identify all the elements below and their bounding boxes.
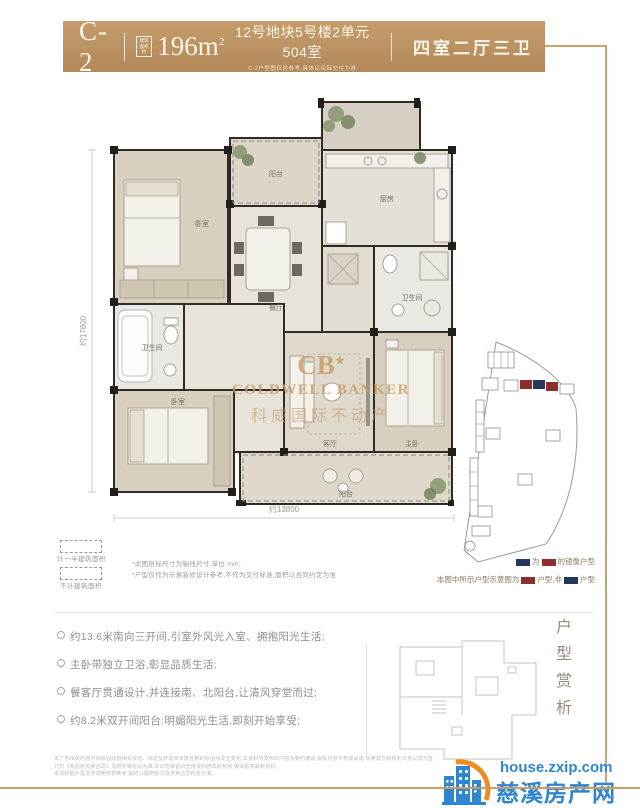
site-plan (448, 336, 626, 568)
feature-item: 餐客厅贯通设计,并连接南、北阳台,让清风穿堂而过; (57, 685, 363, 700)
disclaimer-line2: 本资料图片及文字说明仅供参考,最终以政府批文及买卖合同约定为准。 (54, 771, 434, 779)
site-unit-red (520, 380, 532, 389)
site-unit-red (546, 382, 558, 391)
room-label: 餐厅 (269, 303, 283, 312)
section-divider (55, 612, 595, 613)
disclaimer-line1: 本广告相关内容不排除因政府相关规划、规定及开发商未能控制的原因而发生变化,本资料… (54, 756, 434, 771)
watermark-line1: COLDWELL BANKER (218, 382, 424, 399)
red-chip-icon (542, 559, 556, 566)
room-label: 阳台 (339, 489, 353, 498)
header-divider (391, 33, 392, 61)
features-list: 约13.6米南向三开间,引室外风光入室、拥抱阳光生活;主卧带独立卫浴,彰显品质生… (57, 629, 363, 741)
page: { "header": { "unit_code": "C-2", "area_… (0, 0, 640, 807)
dim-bottom-label: 约13800 (269, 504, 300, 514)
plan-notes: *此图所标尺寸为轴线尺寸,单位:mm; *户型仅作为示意装修设计参考,不作为交付… (132, 559, 336, 581)
coldwell-banker-logo-icon: CB★ (218, 346, 424, 380)
feature-text: 餐客厅贯通设计,并连接南、北阳台,让清风穿堂而过; (70, 685, 317, 700)
feature-text: 主卧带独立卫浴,彰显品质生活; (70, 657, 217, 672)
mirror-legend-line1: 为的镜像户型 (340, 553, 595, 571)
feature-item: 约13.6米南向三开间,引室外风光入室、拥抱阳光生活; (57, 629, 363, 644)
floor-plan: 约17800 约13800 阳台厨房餐厅卫生间卧室卧室客厅主卧卫生间阳台 (68, 96, 460, 532)
plan-note-2: *户型仅作为示意装修设计参考,不作为交付标准,面积以合同约定为准 (132, 570, 336, 581)
disclaimer: 本广告相关内容不排除因政府相关规划、规定及开发商未能控制的原因而发生变化,本资料… (54, 756, 434, 782)
mirror-legend: 为的镜像户型 本图中所示户型示意图为户型,非户型 (340, 553, 595, 589)
room-label: 卫生间 (402, 293, 423, 302)
feature-text: 约8.2米双开间阳台:明媚阳光生活,即刻开始享受; (70, 713, 300, 728)
area-label-top: 建筑 (140, 38, 149, 43)
red-chip-icon (521, 577, 535, 584)
navy-chip-icon (516, 559, 530, 566)
building-logo-icon (440, 758, 498, 806)
room-label: 厨房 (380, 194, 394, 203)
room-label: 主卧 (405, 439, 419, 448)
legend-label-half-area: 计一半建筑面积 (57, 553, 106, 563)
mirror-legend-line2: 本图中所示户型示意图为户型,非户型 (340, 571, 595, 589)
area-value: 196m2 (157, 31, 224, 62)
area-unit-sup: 2 (219, 36, 225, 48)
room-label: 卫生间 (142, 343, 163, 352)
bullet-ring-icon (57, 631, 65, 639)
dimension-bottom: 约13800 (114, 504, 454, 522)
site-unit-navy (533, 380, 545, 389)
brand-watermark: CB★ COLDWELL BANKER 科威国际不动产 (218, 346, 424, 426)
frame-line-horizontal (545, 45, 606, 47)
watermark-site-name: 慈溪房产网 (496, 774, 616, 808)
room-label: 客厅 (323, 439, 337, 448)
dim-left-label: 约17800 (78, 315, 88, 346)
feature-text: 约13.6米南向三开间,引室外风光入室、拥抱阳光生活; (70, 629, 325, 644)
address-block: 12号地块5号楼2单元504室 C-2户型图仅供参考,具体以实际交付为准 (234, 22, 370, 72)
bullet-ring-icon (57, 659, 65, 667)
footer-rule (0, 787, 640, 789)
area-label-box: 建筑 面积约 (136, 36, 153, 58)
site-buildings (465, 352, 574, 551)
floorplate-mini-diagram (392, 637, 544, 767)
address-note: C-2户型图仅供参考,具体以实际交付为准 (234, 64, 370, 72)
room-label: 卧室 (195, 219, 209, 228)
watermark-line2: 科威国际不动产 (218, 402, 424, 426)
address-text: 12号地块5号楼2单元504室 (234, 22, 370, 62)
legend-symbol-half-area (60, 540, 102, 553)
feature-item: 约8.2米双开间阳台:明媚阳光生活,即刻开始享受; (57, 713, 363, 728)
header-divider (124, 33, 125, 61)
plan-note-1: *此图所标尺寸为轴线尺寸,单位:mm; (132, 559, 336, 570)
room-label: 卧室 (171, 397, 185, 406)
legend-symbol-no-area (60, 567, 102, 580)
navy-chip-icon (564, 577, 578, 584)
room-config: 四室二厅三卫 (413, 34, 533, 59)
area-label-bottom: 面积约 (140, 44, 149, 55)
legend-label-no-area: 不计建筑面积 (60, 580, 102, 590)
dimension-left: 约17800 (78, 150, 96, 492)
unit-code: C-2 (79, 16, 113, 78)
bullet-ring-icon (57, 715, 65, 723)
features-divider (366, 645, 367, 757)
bullet-ring-icon (57, 687, 65, 695)
feature-item: 主卧带独立卫浴,彰显品质生活; (57, 657, 363, 672)
room-label: 阳台 (269, 169, 283, 178)
header-bar: C-2 建筑 面积约 196m2 12号地块5号楼2单元504室 C-2户型图仅… (63, 21, 545, 72)
furniture-entry-cabinet (328, 254, 358, 284)
